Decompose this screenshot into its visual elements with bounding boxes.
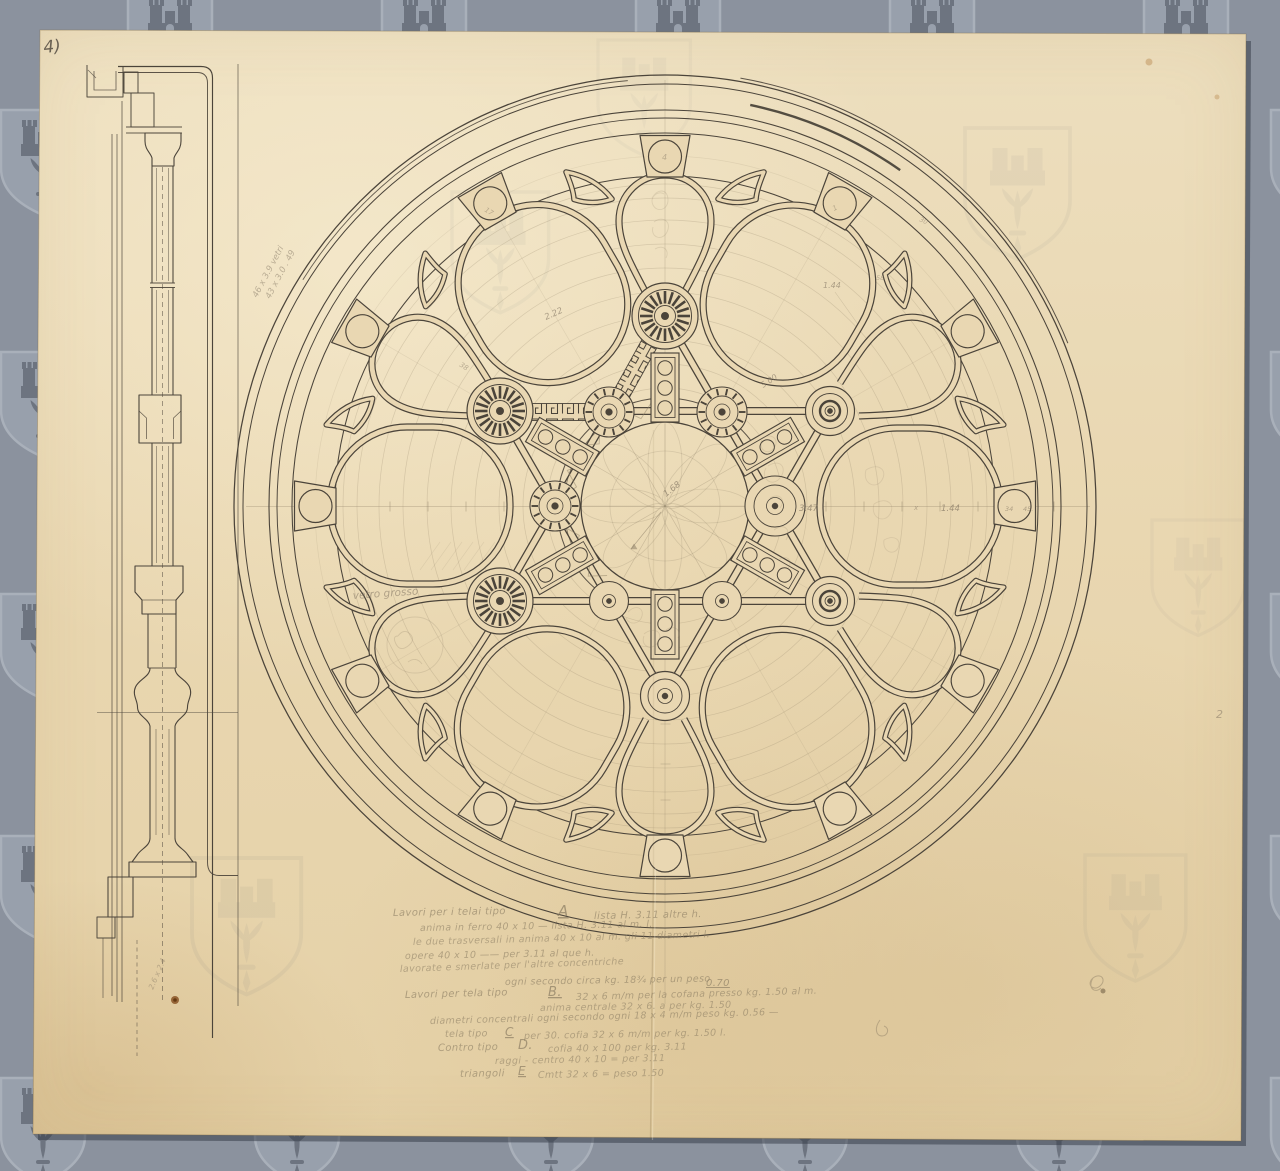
sheet-number: 4): [42, 36, 61, 58]
dimension-annotation: 2.22: [543, 306, 564, 323]
dimension-annotation: 5.00: [759, 372, 779, 389]
scanned-drawing-page: 4) 2.22 5.00 1.44 3.47 1.44 34 45. 1.68 …: [0, 0, 1280, 1171]
dimension-annotation: 38: [458, 361, 470, 373]
note-line: per 30. cofia 32 x 6 m/m per kg. 1.50 l.: [523, 1027, 727, 1042]
note-type-letter: D.: [518, 1038, 533, 1053]
note-line: Lavori per tela tipo: [405, 987, 508, 1001]
rim-block-number: 4: [662, 153, 667, 162]
annotations-layer: 4) 2.22 5.00 1.44 3.47 1.44 34 45. 1.68 …: [42, 36, 1223, 991]
note-type-letter: C: [505, 1025, 514, 1039]
rose-window-drawing: 4) 2.22 5.00 1.44 3.47 1.44 34 45. 1.68 …: [0, 0, 1280, 1171]
dimension-annotation: 30: [918, 216, 929, 227]
note-line: Contro tipo: [438, 1042, 499, 1054]
note-line: Cmtt 32 x 6 = peso 1.50: [538, 1068, 664, 1081]
margin-number: 2: [1216, 708, 1223, 721]
dimension-annotation: 1.44: [941, 504, 960, 514]
rotated-scribble: 2.6 x 2.4: [147, 957, 168, 991]
handwritten-notes-block: Lavori per i telai tipo A lista H. 3.11 …: [393, 902, 817, 1081]
dimension-annotation: 1.44: [823, 281, 841, 290]
dimension-annotation: 58: [876, 274, 884, 282]
note-line: tela tipo: [445, 1028, 488, 1040]
note-type-letter: E: [518, 1064, 526, 1078]
rotated-scribble: 46 x 3.9 vetri 43 x 3.0 . 49: [251, 243, 298, 305]
note-line: triangoli: [460, 1068, 505, 1080]
note-type-letter: A: [557, 902, 569, 920]
note-line: Lavori per i telai tipo: [393, 906, 506, 919]
dimension-annotation: 34: [1005, 505, 1013, 513]
note-line: ogni secondo circa kg. 18¾ per un peso: [505, 973, 711, 988]
dimension-annotation: 45.: [1023, 505, 1033, 513]
scribble-line: 2.6 x 2.4: [147, 957, 168, 991]
dimension-annotation: 3.47: [799, 504, 819, 514]
axis-cross-mark: x: [913, 504, 919, 512]
note-type-letter: B.: [548, 985, 562, 1000]
